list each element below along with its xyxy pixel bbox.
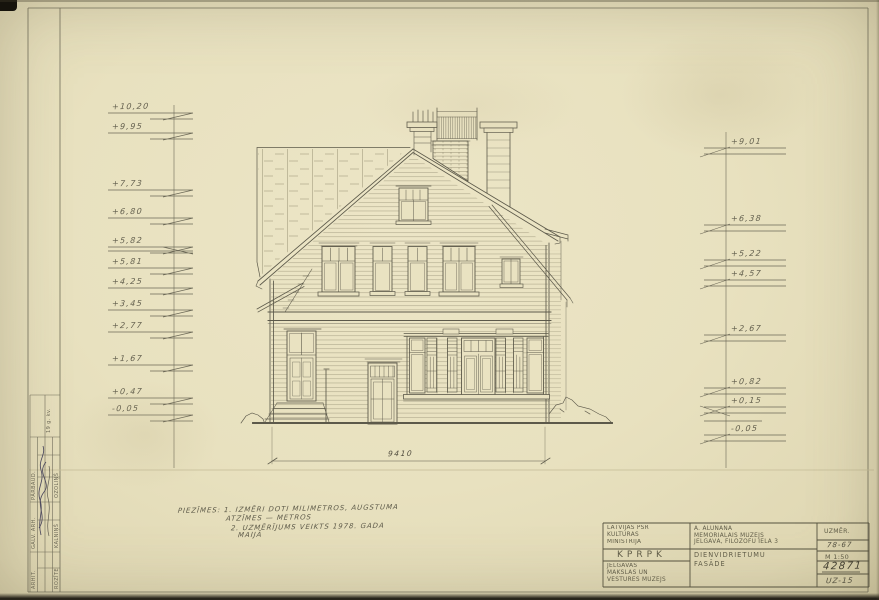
chimney-right [480, 122, 517, 207]
level-label-left-6: +4,25 [112, 277, 144, 287]
org-line-1: LATVIJAS PSR [607, 525, 649, 531]
level-label-right-0: +9,01 [731, 137, 763, 147]
org-abbr: KPRPK [617, 550, 666, 560]
museum-line-1: JELGAVAS [607, 563, 637, 569]
upper-window-4 [439, 243, 479, 296]
level-label-left-2: +7,73 [112, 179, 144, 189]
level-marks-right [700, 132, 786, 468]
level-marks-left [108, 105, 193, 468]
attic-window [396, 186, 431, 225]
object-number: 78-67 [827, 541, 853, 549]
house-elevation [241, 108, 612, 464]
level-label-left-10: +0,47 [112, 387, 144, 397]
object-line-3: JELGAVĀ, FILOZOFU IELĀ 3 [694, 539, 778, 545]
scan-edge-bottom [0, 593, 879, 600]
terrain-left [241, 413, 265, 423]
level-label-right-6: +0,15 [731, 396, 763, 406]
level-label-right-3: +4,57 [731, 269, 763, 279]
dimension-label: 9410 [388, 449, 414, 458]
level-label-left-3: +6,80 [112, 207, 144, 217]
drawing-title-line-2: FASĀDE [694, 560, 726, 568]
notes-line-2: ATZĪMES — METROS [226, 513, 313, 522]
level-label-right-7: -0,05 [731, 424, 759, 433]
museum-line-2: MĀKSLAS UN [607, 570, 648, 576]
drawing-title-line-1: DIENVIDRIETUMU [694, 551, 766, 559]
notes-line-4: MAIJĀ [238, 531, 263, 539]
org-line-2: KULTŪRAS [607, 532, 639, 538]
upper-window-1 [318, 243, 359, 296]
chimney-left [407, 110, 437, 155]
object-line-1: A. ALUNĀNA [694, 526, 732, 532]
ridge-cresting [437, 108, 477, 140]
scan-edge-top [0, 0, 879, 2]
level-label-right-4: +2,67 [731, 324, 763, 334]
scanned-facade-drawing-sheet: { "sheet": { "dimension_label": "9410", … [0, 0, 879, 600]
belt-course [268, 312, 551, 321]
centre-door [365, 359, 402, 424]
level-label-right-2: +5,22 [731, 249, 763, 259]
signoff-name-1: KALNIŅŠ [54, 524, 60, 548]
signoff-name-0: OZOLIŅŠ [54, 473, 60, 498]
sheet-number: UZ-15 [826, 576, 854, 585]
level-label-left-1: +9,95 [112, 122, 144, 132]
upper-window-small [500, 257, 523, 288]
dimension-line [268, 427, 550, 464]
signoff-role-1: GALV. ARH. [31, 517, 37, 549]
inventory-number: 42871 [822, 561, 862, 573]
level-label-left-11: -0,05 [112, 404, 140, 413]
level-label-left-0: +10,20 [112, 102, 150, 112]
right-window-group [404, 329, 550, 401]
signoff-role-2: ARHIT. [31, 570, 37, 589]
signoff-name-2: ROZĪTE [54, 568, 60, 589]
level-label-left-8: +2,77 [112, 321, 144, 331]
signatures [39, 446, 50, 536]
museum-line-3: VĒSTURES MUZEJS [607, 577, 666, 583]
org-line-3: MINISTRIJA [607, 539, 641, 545]
survey-label: UZMĒR. [824, 528, 850, 535]
level-label-left-4: +5,82 [112, 236, 144, 246]
level-label-right-1: +6,38 [731, 214, 763, 224]
left-entrance-door [284, 329, 321, 401]
signoff-date-note: 19 g. kv. [46, 408, 52, 433]
level-label-left-7: +3,45 [112, 299, 144, 309]
scale-label: M 1:50 [825, 553, 849, 561]
level-label-left-9: +1,67 [112, 354, 144, 364]
signoff-role-0: PĀRBAUD. [31, 471, 37, 500]
level-label-left-5: +5,81 [112, 257, 144, 267]
object-line-2: MEMORIĀLAIS MUZEJS [694, 533, 764, 539]
upper-window-2 [370, 243, 395, 296]
upper-window-3 [405, 243, 430, 296]
level-label-right-5: +0,82 [731, 377, 763, 387]
